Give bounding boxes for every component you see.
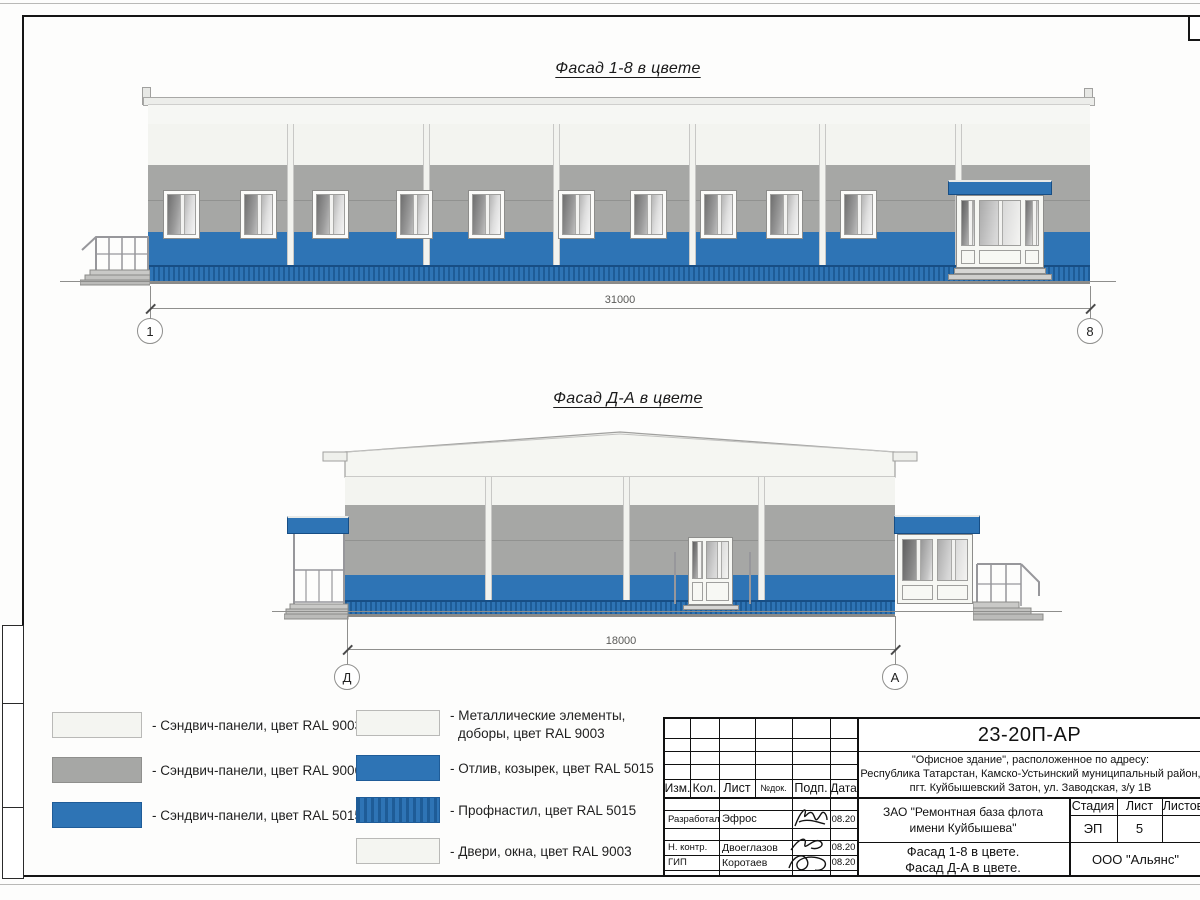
window-glass [562,194,591,235]
facade-mullion [485,477,492,600]
legend-swatch-ral9003 [356,838,440,864]
extension-line [895,616,896,664]
tb-sheet-title-line: Фасад 1-8 в цвете. [907,844,1020,860]
stairs-railing-left [80,234,150,286]
dimension-value: 18000 [561,635,681,647]
legend-swatch-ral9003 [356,710,440,736]
window-glass [770,194,799,235]
vestibule-glazing [897,534,973,604]
porch-left-structure [284,534,350,622]
facade-1-8 [148,97,1090,279]
door-glass [979,200,1021,246]
legend-label: - Профнастил, цвет RAL 5015 [450,802,636,820]
tb-col-list: Лист [719,779,755,797]
dimension-line-31000 [150,308,1090,309]
legend-swatch-profiled [356,797,440,823]
signature-scribble [787,834,833,876]
ground-line-bottom [272,611,1062,612]
window-glass [400,194,429,235]
profiled-plinth [345,600,895,617]
facade-da [345,428,895,612]
sidelight-glass [961,200,975,246]
vestibule-glass [902,539,933,581]
tb-object-address: "Офисное здание", расположенное по адрес… [859,752,1200,796]
tb-line [665,738,857,739]
legend-label: - Металлические элементы, [450,707,625,725]
window [630,190,667,239]
axis-bubble-a: А [882,664,908,690]
window [840,190,877,239]
tb-doc-number: 23-20П-АР [857,719,1200,751]
ground-line-top [60,281,1116,282]
tb-col-izm: Изм. [665,779,690,797]
window [312,190,349,239]
frame-corner-box [1188,15,1200,41]
tb-name: Эфрос [722,810,790,828]
tb-sheets-label: Листов [1162,797,1200,815]
tb-client-line: имени Куйбышева" [910,820,1017,836]
sheet-edge-top [0,3,1200,4]
tb-sheet-label: Лист [1117,797,1162,815]
tb-stage-label: Стадия [1069,797,1117,815]
window [396,190,433,239]
legend-swatch-ral5015 [52,802,142,828]
porch-canopy-left [287,516,349,534]
margin-box-2 [2,703,24,809]
dimension-line-18000 [347,649,895,650]
facade-mullion [819,124,826,265]
facade-mullion [758,477,765,600]
tb-col-podp: Подп. [792,779,830,797]
gable-roof [321,428,919,480]
door-panel [692,582,703,601]
legend-label: - Двери, окна, цвет RAL 9003 [450,843,632,861]
signature-scribble [793,804,829,832]
facade-mullion [287,124,294,265]
tb-col-data: Дата [830,779,857,797]
porch-post [674,552,676,604]
extension-line [347,616,348,664]
side-door [688,537,733,605]
window-glass [704,194,733,235]
door-panel [706,582,729,601]
tb-line [665,764,857,765]
tb-sheet-title-line: Фасад Д-А в цвете. [905,860,1021,876]
legend-swatch-ral9003 [52,712,142,738]
tb-sheet-title: Фасад 1-8 в цвете. Фасад Д-А в цвете. [857,842,1069,877]
door-panel [979,250,1021,264]
axis-bubble-d: Д [334,664,360,690]
window [163,190,200,239]
door-panel [1025,250,1039,264]
extension-line [1090,286,1091,319]
tb-role: Н. контр. [668,840,718,855]
vestibule-panel [902,585,933,600]
porch-post [749,552,751,604]
panel-band-white [345,477,895,505]
title-block: Изм. Кол. Лист №док. Подп. Дата Разработ… [663,717,1200,877]
vestibule-glass [937,539,968,581]
window [766,190,803,239]
tb-col-kol: Кол. [690,779,719,797]
tb-object-line: Республика Татарстан, Камско-Устьинский … [860,767,1200,781]
tb-stage-value: ЭП [1069,815,1117,842]
facade-da-title: Фасад Д-А в цвете [448,390,808,408]
window [468,190,505,239]
dimension-value: 31000 [560,294,680,306]
window-glass [244,194,273,235]
vestibule-stairs [973,560,1051,624]
window [240,190,277,239]
sidelight-glass [1025,200,1039,246]
tb-role: Разработал [668,810,718,828]
facade-mullion [689,124,696,265]
tb-client-line: ЗАО "Ремонтная база флота [883,804,1043,820]
tb-sheet-value: 5 [1117,815,1162,842]
extension-line [150,286,151,319]
tb-col-ndok: №док. [755,779,792,797]
window-glass [634,194,663,235]
tb-company: ООО "Альянс" [1069,842,1200,877]
tb-sheets-value [1162,815,1200,842]
tb-name: Двоеглазов [722,840,790,855]
door-step [683,605,739,610]
vestibule-canopy [894,515,980,534]
window [700,190,737,239]
drawing-sheet: Фасад 1-8 в цвете [0,0,1200,900]
window-glass [472,194,501,235]
tb-role: ГИП [668,855,718,870]
sheet-edge-bottom [0,884,1200,885]
vestibule-panel [937,585,968,600]
panel-seam [345,540,895,541]
tb-name: Коротаев [722,855,790,870]
tb-object-line: "Офисное здание", расположенное по адрес… [912,753,1149,767]
legend-label: - Сэндвич-панели, цвет RAL 9006 [152,762,362,780]
door-panel [961,250,975,264]
margin-box-3 [2,807,24,879]
fascia-band [148,104,1090,126]
legend-label: - Сэндвич-панели, цвет RAL 9003 [152,717,362,735]
legend-swatch-ral5015 [356,755,440,781]
entrance-canopy [948,180,1052,195]
facade-mullion [623,477,630,600]
axis-bubble-8: 8 [1077,318,1103,344]
legend-label: - Отлив, козырек, цвет RAL 5015 [450,760,654,778]
door-glass [706,541,729,579]
tb-date: 08.20 [830,810,857,828]
tb-date: 08.20 [830,840,857,855]
legend-label: доборы, цвет RAL 9003 [450,725,625,743]
entrance-portal [956,195,1044,268]
tb-object-line: пгт. Куйбышевский Затон, ул. Заводская, … [910,781,1152,795]
tb-client: ЗАО "Ремонтная база флота имени Куйбышев… [857,797,1069,842]
window [558,190,595,239]
legend-label: - Сэндвич-панели, цвет RAL 5015 [152,807,362,825]
margin-box-1 [2,625,24,705]
window-glass [167,194,196,235]
entrance-step [948,274,1052,280]
tb-line [665,751,857,752]
panel-band-blue [345,575,895,600]
tb-date: 08.20 [830,855,857,870]
door-sidelight-glass [692,541,703,579]
legend-swatch-ral9006 [52,757,142,783]
window-glass [316,194,345,235]
facade-1-8-title: Фасад 1-8 в цвете [448,60,808,78]
window-glass [844,194,873,235]
panel-band-gray [345,505,895,575]
axis-bubble-1: 1 [137,318,163,344]
